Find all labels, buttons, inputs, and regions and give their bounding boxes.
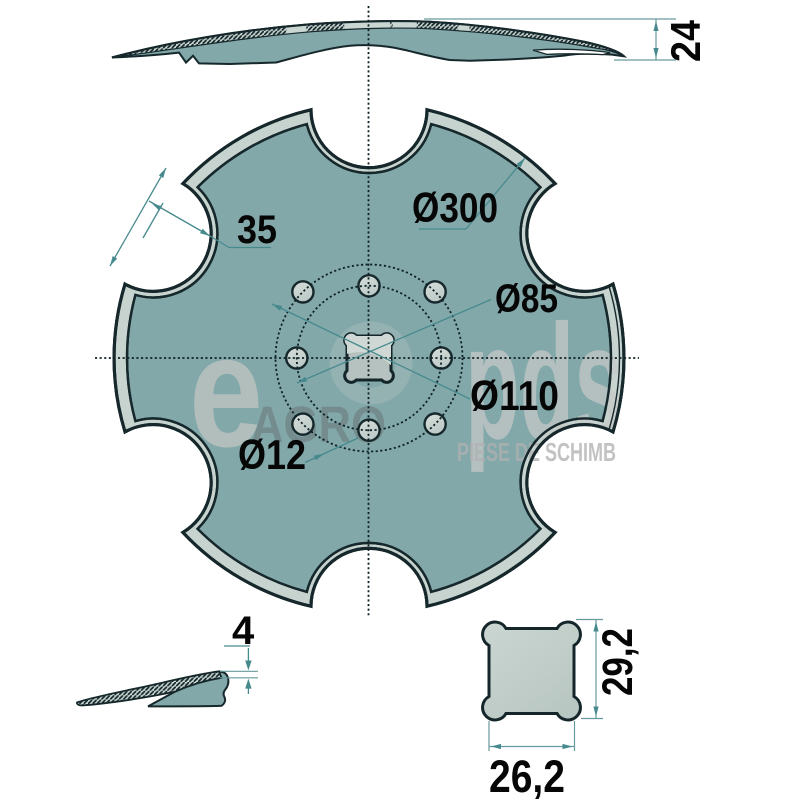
svg-text:4: 4	[232, 609, 255, 653]
svg-text:Ø110: Ø110	[470, 372, 559, 419]
svg-text:24: 24	[662, 19, 709, 62]
svg-text:35: 35	[237, 208, 277, 252]
svg-text:29,2: 29,2	[594, 628, 642, 696]
svg-text:Ø300: Ø300	[412, 184, 498, 231]
svg-text:26,2: 26,2	[489, 751, 565, 800]
svg-text:Ø85: Ø85	[495, 277, 558, 321]
svg-text:Ø12: Ø12	[238, 431, 306, 478]
